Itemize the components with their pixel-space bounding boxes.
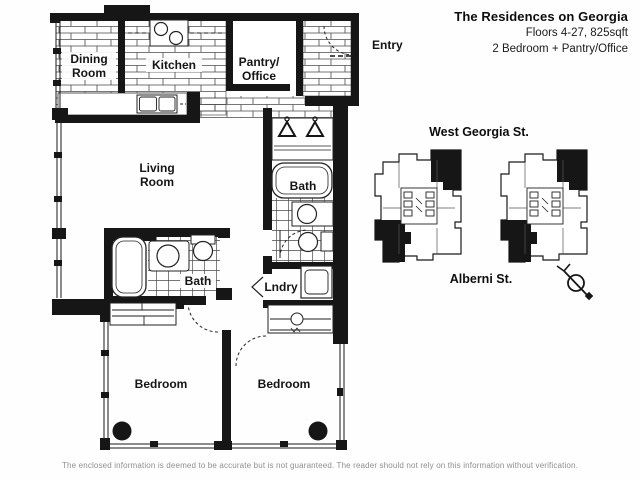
sink-lower-icon (149, 241, 189, 271)
room-label-bath-lower: Bath (185, 274, 212, 288)
street-label-top: West Georgia St. (429, 125, 529, 139)
room-label-entry: Entry (372, 38, 403, 52)
structural-column (113, 422, 132, 441)
north-arrow-icon (557, 264, 593, 300)
subtitle-layout: 2 Bedroom + Pantry/Office (454, 42, 628, 56)
disclaimer-text: The enclosed information is deemed to be… (0, 461, 640, 470)
bathtub-lower-icon (112, 237, 146, 297)
floor-plan-drawing: Dining Room Kitchen Pantry/ Office Livin… (0, 0, 640, 480)
room-label-pantry-2: Office (242, 69, 276, 83)
room-label-living-1: Living (139, 161, 174, 175)
subtitle-floors: Floors 4-27, 825sqft (454, 26, 628, 40)
room-label-bedroom-right: Bedroom (258, 377, 311, 391)
room-label-living-2: Room (140, 175, 174, 189)
closet-hangers-icon (272, 117, 333, 160)
title-block: The Residences on Georgia Floors 4-27, 8… (454, 9, 628, 56)
room-label-bedroom-left: Bedroom (135, 377, 188, 391)
bedroom-left-door-arc (188, 302, 218, 332)
closet-rod-icon (268, 305, 333, 333)
tower-footprint-east (501, 150, 587, 262)
bedroom-right-door-arc (236, 336, 266, 366)
sliding-closet-icon (110, 303, 176, 325)
floor-plan: Dining Room Kitchen Pantry/ Office Livin… (50, 5, 403, 450)
room-label-dining-1: Dining (70, 52, 107, 66)
structural-column (309, 422, 328, 441)
bifold-door-icon (252, 277, 263, 297)
washer-dryer-icon (301, 266, 332, 298)
street-label-bottom: Alberni St. (450, 272, 513, 286)
floorplan-page: Dining Room Kitchen Pantry/ Office Livin… (0, 0, 640, 480)
room-label-laundry: Lndry (264, 280, 298, 294)
site-plan: West Georgia St. Alberni St. (375, 125, 593, 300)
room-label-pantry-1: Pantry/ (239, 55, 280, 69)
room-label-bath-upper: Bath (290, 179, 317, 193)
page-title: The Residences on Georgia (454, 9, 628, 25)
sink-upper-icon (292, 202, 333, 226)
room-label-kitchen: Kitchen (152, 58, 196, 72)
tower-footprint-west (375, 150, 461, 262)
room-label-dining-2: Room (72, 66, 106, 80)
